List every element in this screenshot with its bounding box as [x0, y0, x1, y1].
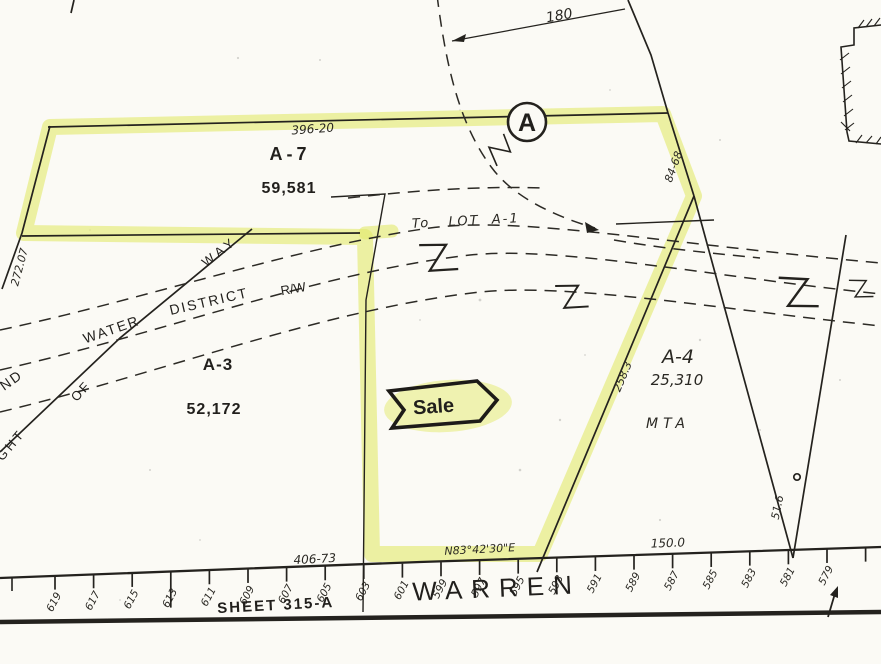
dimension-labels: 180 396-20 272.07 84-68 258.3 51.6 406-7…	[8, 6, 786, 567]
point-marker-label: A	[518, 109, 536, 137]
street-number-label: 601	[392, 579, 412, 602]
dimension-150-0: 150.0	[650, 535, 685, 550]
edge-mark-top-left	[71, 0, 74, 13]
street-number-label: 615	[122, 588, 142, 612]
paper-specks	[89, 57, 841, 601]
break-symbol-icon	[846, 278, 876, 300]
break-symbol-icon	[773, 273, 823, 312]
dimension-180-arrowhead	[452, 34, 466, 42]
cross-tick-line	[616, 220, 714, 224]
break-symbol-icon	[487, 133, 513, 167]
street-number-label: 591	[585, 572, 605, 595]
dimension-396-20: 396-20	[291, 121, 335, 138]
parcel-a3-id: A-3	[203, 355, 233, 374]
break-symbol-icon	[552, 282, 591, 311]
dashed-lines	[0, 0, 881, 412]
parcel-a4-id: A-4	[660, 346, 694, 368]
row-right-fragment: RIGHT	[0, 426, 28, 478]
building-footprint	[840, 18, 881, 144]
sale-flag-label: Sale	[412, 395, 455, 420]
row-of-label: OF	[68, 378, 94, 404]
curve-arc-arrowhead	[585, 222, 599, 233]
point-marker-a: A	[508, 103, 546, 141]
street-number-label: 585	[701, 568, 721, 592]
line-516	[793, 235, 846, 558]
street-name: WARREN	[412, 569, 582, 606]
street-number-label: 603	[353, 580, 373, 603]
street-number-label: 613	[160, 587, 180, 610]
parcel-a3-area: 52,172	[187, 401, 242, 418]
parcel-a4-owner: MTA	[646, 416, 690, 432]
map-canvas: 6196176156136116096076056036015995975955…	[0, 0, 881, 664]
dimension-180-line	[452, 9, 625, 41]
dimension-272-07: 272.07	[8, 247, 31, 288]
street-number-label: 579	[816, 564, 836, 588]
row-rw-label: R/W	[279, 279, 307, 298]
street-number-label: 589	[623, 570, 643, 594]
street-number-label: 619	[44, 590, 64, 614]
street-number-label: 611	[199, 585, 219, 608]
to-lot-note: To LOT A-1	[412, 211, 520, 232]
row-nd-fragment: ND	[0, 366, 26, 393]
parcel-a7-area: 59,581	[262, 180, 317, 197]
dimension-180: 180	[545, 6, 574, 26]
street-number-label: 583	[739, 567, 759, 590]
parcel-a4-area: 25,310	[651, 371, 704, 389]
street-number-label: 581	[778, 565, 798, 588]
street-number-label: 617	[83, 589, 103, 613]
dimension-180-group	[452, 9, 625, 42]
street-number-label: 587	[662, 569, 682, 593]
dimension-51-6: 51.6	[769, 494, 787, 521]
row-water-label: WATER	[81, 312, 142, 346]
sheet-border-line	[0, 612, 881, 622]
boundary-lines	[0, 0, 846, 612]
break-symbol-icon	[416, 241, 461, 275]
parcel-a7-id: A-7	[269, 144, 310, 164]
point-circle-516	[794, 474, 800, 480]
dimension-406-73: 406-73	[293, 551, 336, 567]
plat-map-scan: 6196176156136116096076056036015995975955…	[0, 0, 881, 664]
ne-boundary-line	[628, 0, 668, 113]
sheet-label: SHEET 315-A	[217, 594, 335, 617]
row-dashed-upper	[348, 187, 545, 198]
